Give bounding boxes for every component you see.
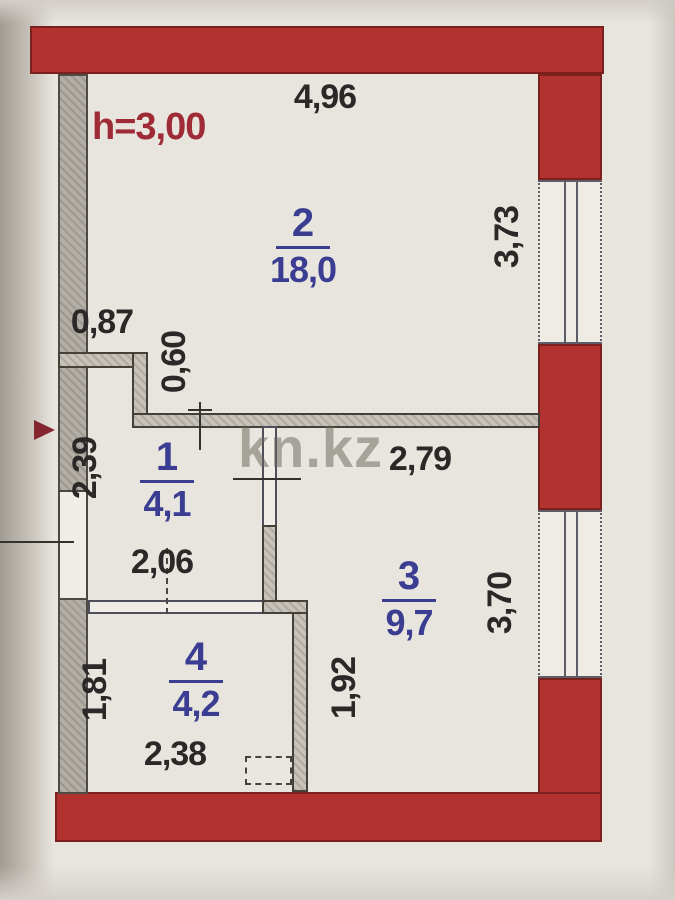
dim-right-lower: 3,70 <box>480 543 520 663</box>
paper-shadow-top <box>0 0 675 24</box>
dim-niche-width: 0,87 <box>52 305 152 339</box>
dim-room4-width: 2,38 <box>125 737 225 771</box>
paper-shadow-bottom <box>0 866 675 900</box>
wall-hall-room3 <box>262 525 277 602</box>
room2-number: 2 <box>276 203 330 249</box>
wall-room4-right <box>292 612 308 792</box>
dim-room4-height: 1,81 <box>75 630 115 750</box>
niche-wall-vertical <box>132 352 148 418</box>
floor-plan: 4,96 3,73 0,87 0,60 2,39 2,79 2,06 3,70 … <box>0 0 675 900</box>
window-glazing-line <box>564 510 566 678</box>
room3-area: 9,7 <box>374 605 444 641</box>
paper-shadow-right <box>649 0 675 900</box>
wall-top <box>30 26 604 74</box>
window-glazing-line <box>564 180 566 344</box>
room1-number: 1 <box>140 437 194 483</box>
window-glazing-line <box>576 180 578 344</box>
window-room2 <box>538 180 602 344</box>
room1-area: 4,1 <box>128 486 206 522</box>
room-label-4: 4 4,2 <box>155 637 237 722</box>
dim-room3-width: 2,79 <box>370 442 470 476</box>
window-glazing-line <box>576 510 578 678</box>
wall-right-upper <box>538 74 602 180</box>
window-cap <box>540 180 600 182</box>
extension-line <box>0 541 74 543</box>
room4-area: 4,2 <box>155 686 237 722</box>
dim-hall-width: 2,06 <box>112 545 212 579</box>
dim-right-upper: 3,73 <box>487 177 527 297</box>
room-label-2: 2 18,0 <box>259 203 347 288</box>
dim-top-width: 4,96 <box>270 80 380 114</box>
entrance-arrow-icon <box>34 420 55 440</box>
watermark: kn.kz <box>238 420 383 476</box>
room4-number: 4 <box>169 637 223 683</box>
wall-bottom <box>55 792 602 842</box>
window-room3 <box>538 510 602 678</box>
room-label-3: 3 9,7 <box>374 556 444 641</box>
window-cap <box>540 510 600 512</box>
room3-number: 3 <box>382 556 436 602</box>
paper-shadow-left <box>0 0 54 900</box>
dim-wall-length: 1,92 <box>324 628 364 748</box>
dim-left-height: 2,39 <box>65 408 105 528</box>
dim-niche-depth: 0,60 <box>154 302 194 422</box>
room-label-1: 1 4,1 <box>128 437 206 522</box>
room2-area: 18,0 <box>259 252 347 288</box>
ceiling-height-note: h=3,00 <box>92 108 205 146</box>
wall-room4-top <box>88 600 278 614</box>
vent-symbol <box>245 756 292 785</box>
wall-right-middle <box>538 344 602 510</box>
